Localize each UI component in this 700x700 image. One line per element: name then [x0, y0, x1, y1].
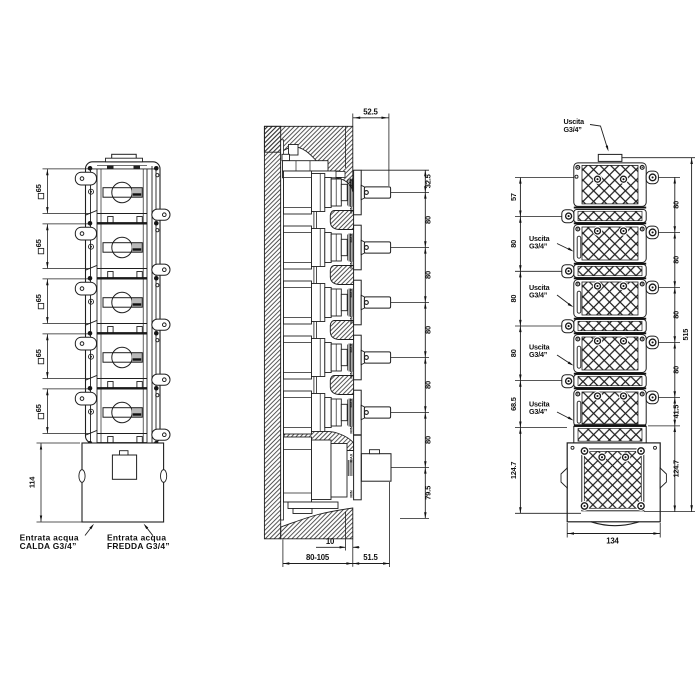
- svg-text:MIN: MIN: [349, 371, 354, 378]
- svg-text:FREDDA G3/4”: FREDDA G3/4”: [107, 541, 170, 551]
- svg-text:80: 80: [424, 271, 433, 279]
- svg-text:32.5: 32.5: [424, 173, 433, 188]
- svg-text:41.5: 41.5: [672, 405, 681, 419]
- svg-text:80: 80: [509, 240, 518, 248]
- svg-text:MIN: MIN: [349, 490, 354, 497]
- svg-text:65: 65: [34, 403, 43, 412]
- svg-text:80: 80: [672, 256, 681, 264]
- svg-text:79.5: 79.5: [424, 485, 433, 500]
- svg-text:114: 114: [28, 476, 37, 488]
- svg-text:MAX: MAX: [349, 398, 354, 407]
- svg-text:515: 515: [681, 329, 690, 341]
- svg-text:80: 80: [424, 436, 433, 444]
- svg-text:80: 80: [672, 366, 681, 374]
- svg-text:65: 65: [34, 183, 43, 192]
- svg-text:57: 57: [509, 193, 518, 201]
- svg-text:52.5: 52.5: [363, 108, 378, 117]
- svg-text:80: 80: [672, 201, 681, 209]
- svg-text:51.5: 51.5: [363, 553, 378, 562]
- svg-text:80: 80: [509, 295, 518, 303]
- svg-text:68.5: 68.5: [509, 397, 518, 411]
- svg-text:80: 80: [424, 216, 433, 224]
- svg-text:124.7: 124.7: [672, 460, 681, 478]
- svg-text:MIN: MIN: [349, 316, 354, 323]
- svg-text:124.7: 124.7: [509, 462, 518, 480]
- svg-text:MAX: MAX: [349, 233, 354, 242]
- svg-text:MIN: MIN: [349, 426, 354, 433]
- svg-text:80-105: 80-105: [306, 553, 330, 562]
- svg-text:65: 65: [34, 348, 43, 357]
- svg-text:80: 80: [424, 381, 433, 389]
- svg-text:G3/4”: G3/4”: [564, 125, 583, 134]
- svg-text:10: 10: [326, 537, 335, 546]
- svg-text:134: 134: [606, 536, 619, 545]
- svg-text:G3/4”: G3/4”: [529, 350, 548, 359]
- svg-text:65: 65: [34, 238, 43, 247]
- svg-text:MIN: MIN: [349, 206, 354, 213]
- svg-text:MAX: MAX: [349, 453, 354, 462]
- svg-text:MAX: MAX: [349, 288, 354, 297]
- svg-text:65: 65: [34, 293, 43, 302]
- svg-text:MIN: MIN: [349, 261, 354, 268]
- svg-text:CALDA G3/4”: CALDA G3/4”: [20, 541, 77, 551]
- svg-text:G3/4”: G3/4”: [529, 291, 548, 300]
- svg-text:80: 80: [424, 326, 433, 334]
- svg-text:G3/4”: G3/4”: [529, 407, 548, 416]
- svg-text:G3/4”: G3/4”: [529, 242, 548, 251]
- svg-text:80: 80: [672, 311, 681, 319]
- svg-text:MAX: MAX: [349, 178, 354, 187]
- svg-text:80: 80: [509, 349, 518, 357]
- svg-text:MAX: MAX: [349, 343, 354, 352]
